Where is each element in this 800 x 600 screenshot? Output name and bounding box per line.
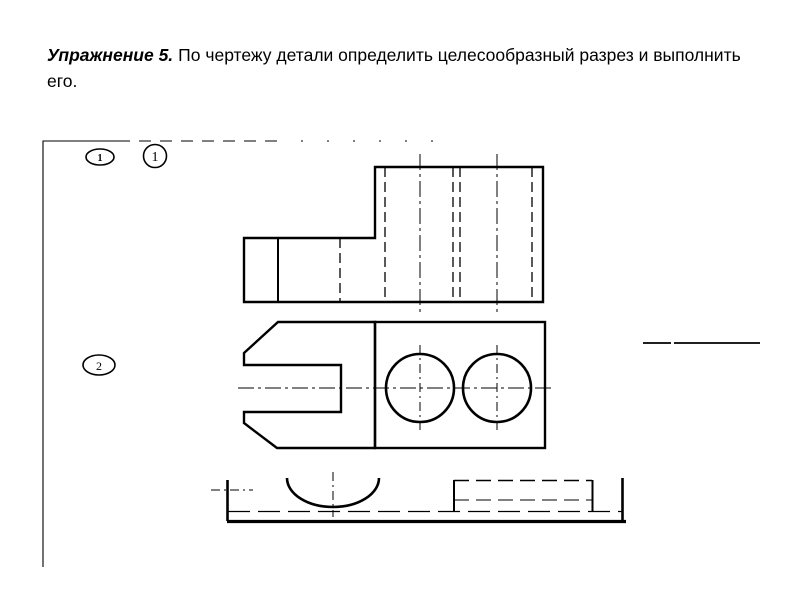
marker-circle-top-label: 1 — [152, 150, 159, 165]
plan-view-fork-outline — [244, 322, 375, 448]
technical-drawing: 1 1 2 — [0, 0, 800, 600]
frame-corner-line — [43, 141, 118, 567]
slide: Упражнение 5.По чертежу детали определит… — [0, 0, 800, 600]
plan-view-plate-outline — [375, 322, 545, 448]
marker-oval-top-label: 1 — [98, 153, 103, 164]
marker-oval-left-label: 2 — [96, 359, 102, 373]
front-view-outline — [244, 167, 543, 302]
